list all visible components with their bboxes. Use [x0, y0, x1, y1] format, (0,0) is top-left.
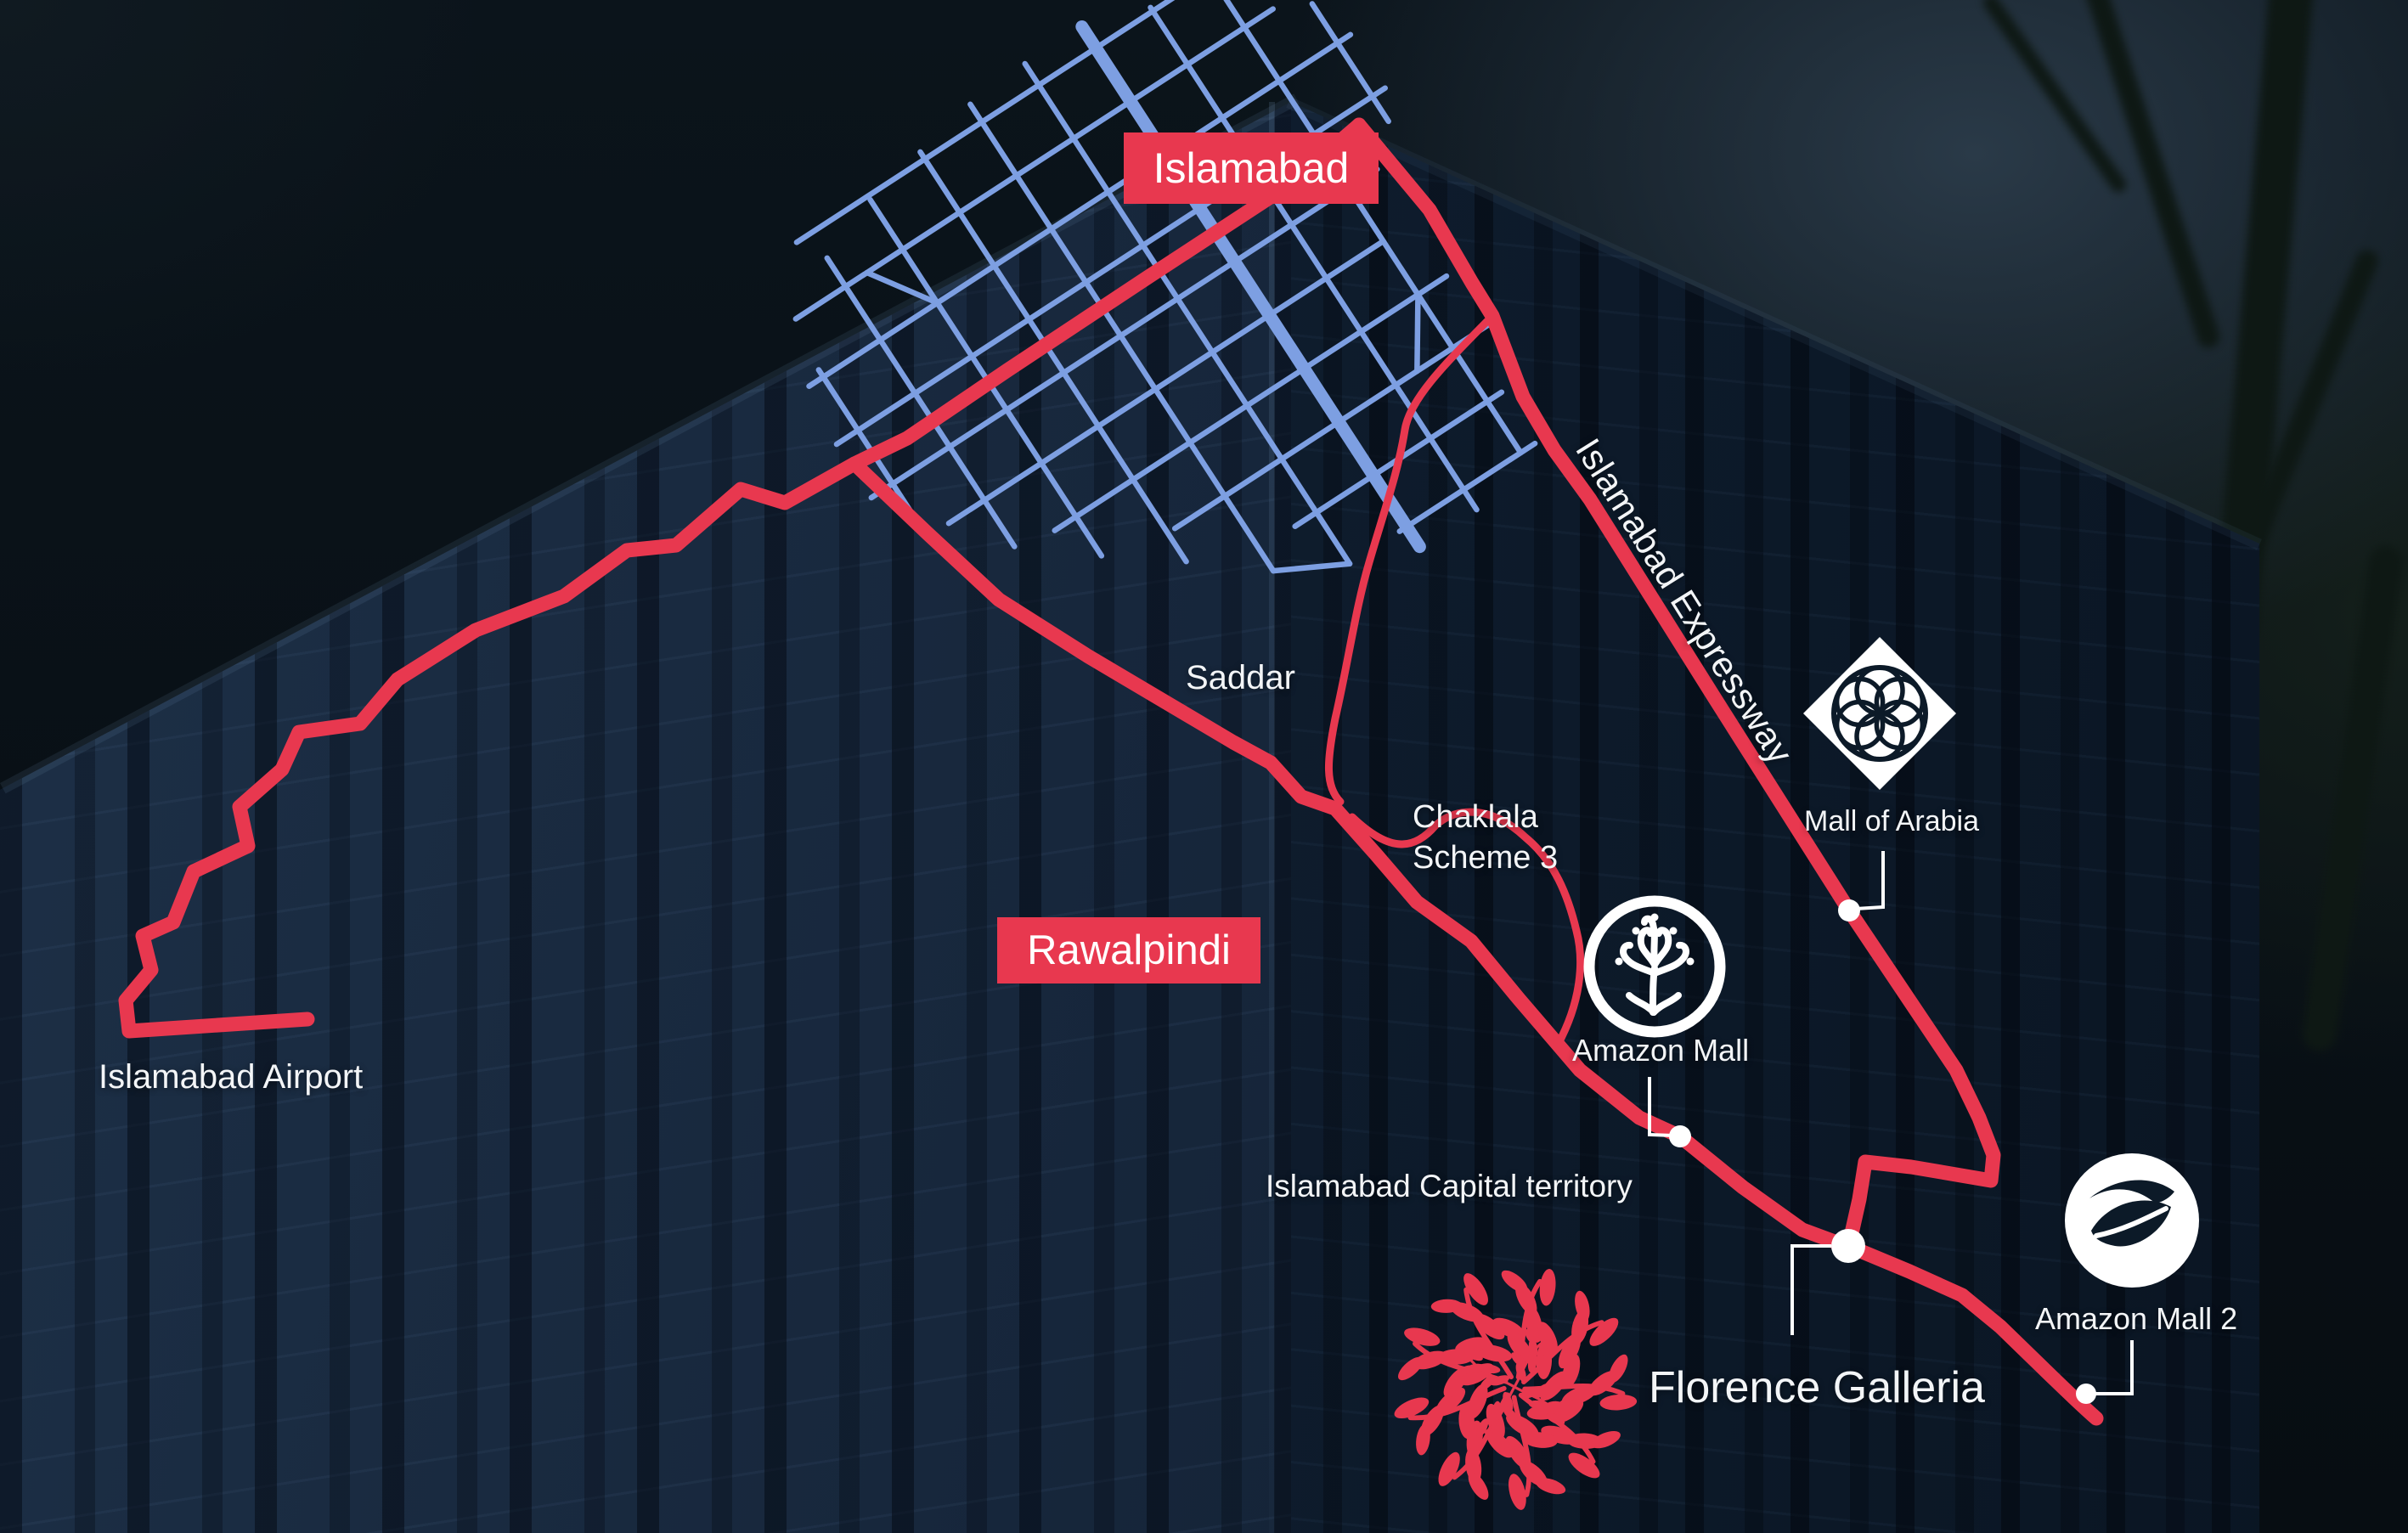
landmark-label-florence-galleria: Florence Galleria [1649, 1362, 1985, 1413]
leader-line-mall-of-arabia [1856, 851, 1883, 909]
arabesque-diamond-icon [1803, 637, 1956, 790]
landmark-label-mall-of-arabia: Mall of Arabia [1804, 805, 1979, 838]
marker-dot-mall-of-arabia [1838, 899, 1860, 921]
area-label-saddar: Saddar [1186, 659, 1295, 697]
marker-dot-florence-galleria [1831, 1229, 1865, 1263]
area-label-islamabad-capital-territory: Islamabad Capital territory [1266, 1169, 1633, 1204]
route-rawalpindi-road [854, 464, 1848, 1246]
landmark-label-islamabad-airport: Islamabad Airport [99, 1058, 363, 1096]
city-label-islamabad: Islamabad [1124, 132, 1379, 204]
marker-dot-amazon-mall [1669, 1125, 1691, 1147]
road-saddar-link [1328, 316, 1492, 802]
ornate-tree-ring-icon [1589, 901, 1720, 1032]
leader-line-florence-galleria [1792, 1246, 1831, 1335]
leaf-circle-icon [2065, 1153, 2199, 1288]
street-avenues [732, 0, 1592, 763]
city-label-rawalpindi: Rawalpindi [997, 917, 1260, 983]
route-islamabad-expressway [1359, 125, 2096, 1418]
floral-medallion-icon [1389, 1266, 1641, 1514]
landmark-label-amazon-mall-2: Amazon Mall 2 [2035, 1301, 2237, 1337]
islamabad-street-grid [719, 0, 1604, 782]
map-infographic: Islamabad Rawalpindi Islamabad Expresswa… [0, 0, 2408, 1533]
route-airport-road [126, 125, 1359, 1031]
landmark-label-amazon-mall: Amazon Mall [1572, 1033, 1749, 1068]
area-label-chaklala-scheme-3: Chaklala Scheme 3 [1413, 797, 1558, 878]
marker-dot-amazon-mall-2 [2076, 1384, 2096, 1404]
leader-line-amazon-mall-2 [2091, 1340, 2132, 1394]
